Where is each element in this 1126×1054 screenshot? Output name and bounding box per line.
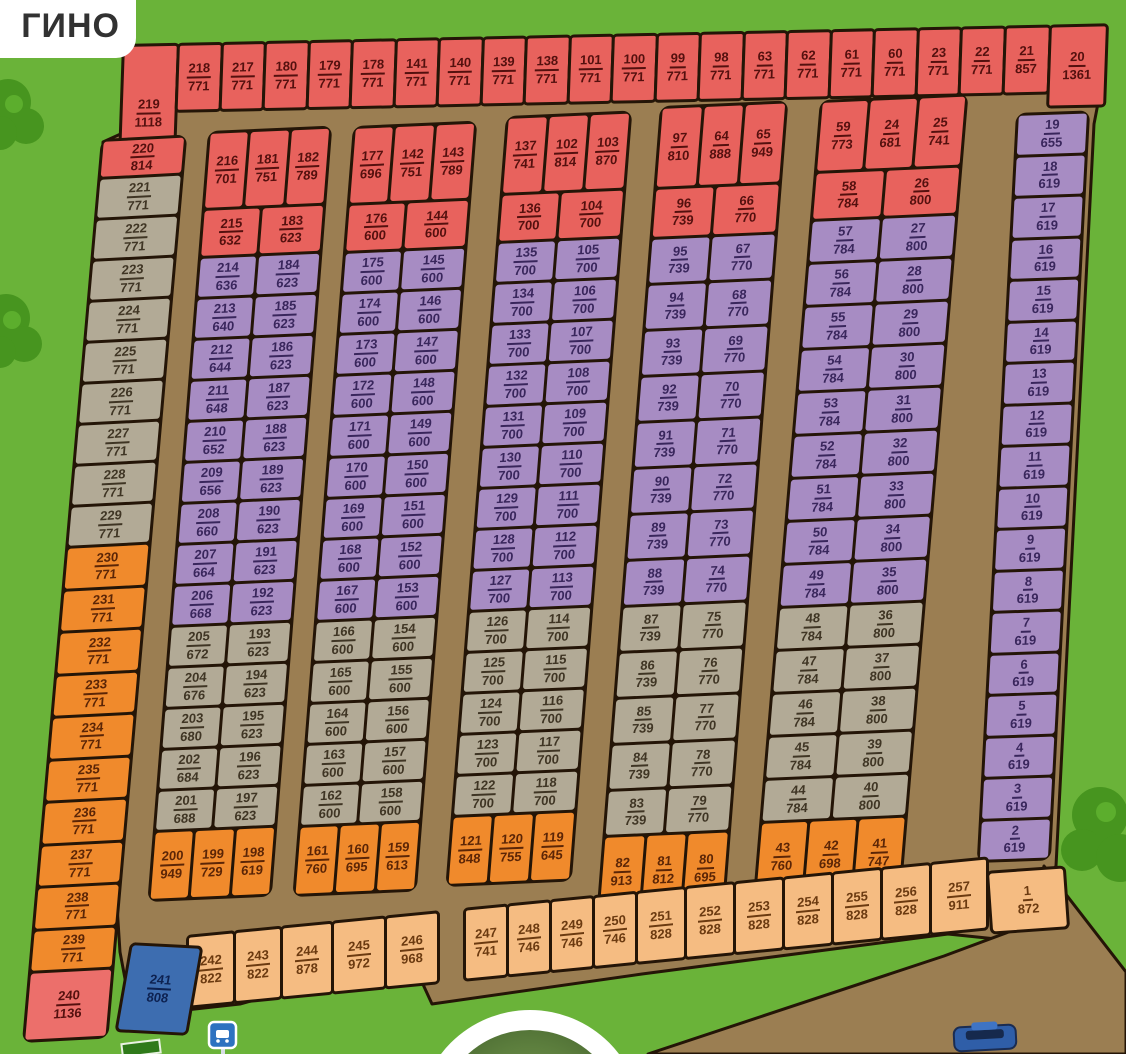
plot-238[interactable]: 238771 xyxy=(35,885,119,929)
plot-224[interactable]: 224771 xyxy=(86,299,170,341)
plot-141[interactable]: 141771 xyxy=(392,37,441,108)
plot-14[interactable]: 14619 xyxy=(1006,321,1076,362)
plot-183[interactable]: 183623 xyxy=(260,206,323,254)
plot-222[interactable]: 222771 xyxy=(94,217,178,259)
plot-139[interactable]: 139771 xyxy=(479,35,528,106)
plot-16[interactable]: 16619 xyxy=(1010,238,1080,279)
plot-25[interactable]: 25741 xyxy=(914,97,965,167)
plot-154[interactable]: 154600 xyxy=(373,618,436,659)
plot-75[interactable]: 75770 xyxy=(681,603,746,649)
plot-26[interactable]: 26800 xyxy=(883,168,959,216)
plot-row: 133700107700 xyxy=(489,321,612,364)
plot-188[interactable]: 188623 xyxy=(244,418,307,459)
plot-246[interactable]: 246968 xyxy=(384,910,440,989)
plot-207[interactable]: 207664 xyxy=(175,543,234,583)
plot-214[interactable]: 214636 xyxy=(198,256,257,296)
plot-area: 784 xyxy=(832,241,855,257)
plot-number: 3 xyxy=(1012,782,1022,799)
plot-row: 4778437800 xyxy=(773,646,919,692)
plot-11[interactable]: 11619 xyxy=(999,446,1069,487)
plot-153[interactable]: 153600 xyxy=(376,577,439,618)
plot-215[interactable]: 215632 xyxy=(201,208,260,255)
plot-239[interactable]: 239771 xyxy=(31,927,115,971)
plot-136[interactable]: 136700 xyxy=(499,193,559,240)
plot-191[interactable]: 191623 xyxy=(234,541,297,582)
plot-120[interactable]: 120755 xyxy=(490,814,533,882)
plot-158[interactable]: 158600 xyxy=(360,782,423,823)
plot-1[interactable]: 1872 xyxy=(986,865,1070,934)
plot-71[interactable]: 71770 xyxy=(695,419,760,465)
plot-114[interactable]: 114700 xyxy=(526,608,590,649)
plot-251[interactable]: 251828 xyxy=(635,886,687,965)
plot-83[interactable]: 83739 xyxy=(606,789,667,835)
plot-176[interactable]: 176600 xyxy=(346,203,405,250)
plot-228[interactable]: 228771 xyxy=(72,463,156,505)
plot-240[interactable]: 2401136 xyxy=(25,970,111,1040)
plot-171[interactable]: 171600 xyxy=(330,415,389,455)
plot-99[interactable]: 99771 xyxy=(653,32,702,103)
plot-36[interactable]: 36800 xyxy=(847,603,923,646)
plot-area: 660 xyxy=(196,523,219,539)
plot-115[interactable]: 115700 xyxy=(523,649,587,690)
plot-110[interactable]: 110700 xyxy=(539,444,603,485)
plot-97[interactable]: 97810 xyxy=(657,107,702,187)
plot-92[interactable]: 92739 xyxy=(638,375,699,421)
plot-2[interactable]: 2619 xyxy=(980,819,1050,860)
plot-17[interactable]: 17619 xyxy=(1012,197,1082,238)
plot-186[interactable]: 186623 xyxy=(250,336,313,377)
plot-area: 676 xyxy=(183,687,206,703)
plot-row: 7619 xyxy=(991,612,1061,653)
plot-27[interactable]: 27800 xyxy=(879,216,955,259)
plot-247[interactable]: 247741 xyxy=(463,903,509,982)
plot-209[interactable]: 209656 xyxy=(182,461,241,501)
plot-65[interactable]: 65949 xyxy=(740,104,785,184)
plot-76[interactable]: 76770 xyxy=(677,649,742,695)
plot-174[interactable]: 174600 xyxy=(340,292,399,332)
plot-6[interactable]: 6619 xyxy=(989,653,1059,694)
plot-187[interactable]: 187623 xyxy=(247,377,310,418)
plot-10[interactable]: 10619 xyxy=(997,487,1067,528)
plot-53[interactable]: 53784 xyxy=(795,391,865,434)
plot-180[interactable]: 180771 xyxy=(262,40,311,111)
plot-202[interactable]: 202684 xyxy=(159,748,218,788)
plot-201[interactable]: 201688 xyxy=(156,789,215,829)
plot-94[interactable]: 94739 xyxy=(645,283,706,329)
plot-148[interactable]: 148600 xyxy=(392,372,455,413)
plot-12[interactable]: 12619 xyxy=(1002,404,1072,445)
plot-54[interactable]: 54784 xyxy=(799,348,869,391)
plot-56[interactable]: 56784 xyxy=(806,262,876,305)
plot-74[interactable]: 74770 xyxy=(684,557,749,603)
plot-229[interactable]: 229771 xyxy=(68,504,152,546)
plot-131[interactable]: 131700 xyxy=(483,405,543,445)
plot-area: 700 xyxy=(579,215,602,231)
plot-126[interactable]: 126700 xyxy=(467,610,527,650)
plot-area: 828 xyxy=(748,915,770,932)
plot-250[interactable]: 250746 xyxy=(592,891,638,970)
plot-146[interactable]: 146600 xyxy=(398,290,461,331)
plot-20[interactable]: 201361 xyxy=(1046,23,1109,108)
plot-93[interactable]: 93739 xyxy=(642,329,703,375)
plot-50[interactable]: 50784 xyxy=(784,520,854,563)
plot-67[interactable]: 67770 xyxy=(710,235,775,281)
plot-169[interactable]: 169600 xyxy=(324,497,383,537)
plot-23[interactable]: 23771 xyxy=(914,26,963,97)
plot-223[interactable]: 223771 xyxy=(90,258,174,300)
plot-89[interactable]: 89739 xyxy=(627,513,688,559)
plot-row: 161760160695159613 xyxy=(296,823,420,894)
plot-178[interactable]: 178771 xyxy=(349,38,398,109)
plot-area: 771 xyxy=(623,69,645,85)
plot-number: 6 xyxy=(1019,657,1029,674)
plot-106[interactable]: 106700 xyxy=(552,280,616,321)
plot-231[interactable]: 231771 xyxy=(61,587,145,631)
plot-7[interactable]: 7619 xyxy=(991,612,1061,653)
plot-area: 600 xyxy=(338,559,361,575)
plot-15[interactable]: 15619 xyxy=(1008,280,1078,321)
plot-206[interactable]: 206668 xyxy=(172,584,231,624)
plot-252[interactable]: 252828 xyxy=(684,881,736,960)
plot-46[interactable]: 46784 xyxy=(770,692,840,735)
plot-78[interactable]: 78770 xyxy=(670,741,735,787)
plot-130[interactable]: 130700 xyxy=(480,446,540,486)
plot-61[interactable]: 61771 xyxy=(827,28,876,99)
plot-254[interactable]: 254828 xyxy=(782,871,834,950)
plot-34[interactable]: 34800 xyxy=(854,517,930,560)
plot-number: 185 xyxy=(273,299,298,317)
plot-152[interactable]: 152600 xyxy=(379,536,442,577)
plot-226[interactable]: 226771 xyxy=(79,381,163,423)
plot-number: 4 xyxy=(1015,740,1025,757)
plot-area: 771 xyxy=(68,864,91,880)
plot-109[interactable]: 109700 xyxy=(543,403,607,444)
plot-181[interactable]: 181751 xyxy=(245,130,288,206)
plot-number: 112 xyxy=(553,530,577,548)
plot-69[interactable]: 69770 xyxy=(702,327,767,373)
plot-179[interactable]: 179771 xyxy=(305,39,354,110)
plot-64[interactable]: 64888 xyxy=(698,105,743,185)
plot-60[interactable]: 60771 xyxy=(871,27,920,98)
plot-59[interactable]: 59773 xyxy=(817,101,868,171)
plot-row: 8619 xyxy=(993,570,1063,611)
plot-area: 814 xyxy=(554,153,577,169)
plot-area: 771 xyxy=(91,609,114,625)
plot-24[interactable]: 24681 xyxy=(866,99,917,169)
plot-number: 172 xyxy=(351,378,376,396)
plot-58[interactable]: 58784 xyxy=(813,171,884,219)
plot-37[interactable]: 37800 xyxy=(843,646,919,689)
plot-172[interactable]: 172600 xyxy=(333,374,392,414)
plot-number: 53 xyxy=(822,396,840,413)
plot-200[interactable]: 200949 xyxy=(151,831,194,899)
plot-134[interactable]: 134700 xyxy=(493,282,553,322)
plot-row: 8773975770 xyxy=(620,603,746,651)
plot-128[interactable]: 128700 xyxy=(473,528,533,568)
plot-87[interactable]: 87739 xyxy=(620,605,681,651)
plot-row: 228771 xyxy=(72,463,156,505)
plot-162[interactable]: 162600 xyxy=(301,784,360,824)
plot-96[interactable]: 96739 xyxy=(653,187,714,237)
plot-196[interactable]: 196623 xyxy=(218,746,281,787)
plot-3[interactable]: 3619 xyxy=(982,778,1052,819)
plot-167[interactable]: 167600 xyxy=(317,579,376,619)
plot-135[interactable]: 135700 xyxy=(496,241,556,281)
plot-216[interactable]: 216701 xyxy=(205,132,248,208)
plot-195[interactable]: 195623 xyxy=(221,705,284,746)
plot-170[interactable]: 170600 xyxy=(327,456,386,496)
plot-151[interactable]: 151600 xyxy=(382,495,445,536)
plot-102[interactable]: 102814 xyxy=(544,115,588,191)
plot-149[interactable]: 149600 xyxy=(389,413,452,454)
plot-133[interactable]: 133700 xyxy=(489,323,549,363)
plot-220[interactable]: 220814 xyxy=(101,138,184,177)
plot-208[interactable]: 208660 xyxy=(179,502,238,542)
plot-28[interactable]: 28800 xyxy=(876,259,952,302)
plot-area: 619 xyxy=(1025,425,1048,441)
plot-29[interactable]: 29800 xyxy=(872,302,948,345)
plot-113[interactable]: 113700 xyxy=(530,567,594,608)
plot-area: 870 xyxy=(595,152,618,168)
plot-144[interactable]: 144600 xyxy=(405,201,468,249)
plot-49[interactable]: 49784 xyxy=(781,563,851,606)
plot-197[interactable]: 197623 xyxy=(215,787,278,828)
plot-221[interactable]: 221771 xyxy=(97,176,181,218)
plot-124[interactable]: 124700 xyxy=(460,692,520,732)
plot-13[interactable]: 13619 xyxy=(1004,363,1074,404)
plot-173[interactable]: 173600 xyxy=(336,333,395,373)
plot-205[interactable]: 205672 xyxy=(169,625,228,665)
plot-number: 177 xyxy=(360,149,385,167)
plot-area: 700 xyxy=(559,464,582,480)
plot-118[interactable]: 118700 xyxy=(514,772,578,813)
plot-108[interactable]: 108700 xyxy=(546,362,610,403)
plot-163[interactable]: 163600 xyxy=(304,743,363,783)
plot-184[interactable]: 184623 xyxy=(257,254,320,295)
plot-155[interactable]: 155600 xyxy=(369,659,432,700)
plot-204[interactable]: 204676 xyxy=(166,666,225,706)
plot-91[interactable]: 91739 xyxy=(635,421,696,467)
plot-number: 111 xyxy=(557,489,581,507)
plot-166[interactable]: 166600 xyxy=(314,620,373,660)
plot-52[interactable]: 52784 xyxy=(791,434,861,477)
plot-185[interactable]: 185623 xyxy=(253,295,316,336)
plot-66[interactable]: 66770 xyxy=(713,185,779,235)
plot-number: 137 xyxy=(513,139,538,157)
plot-255[interactable]: 255828 xyxy=(831,867,883,946)
plot-112[interactable]: 112700 xyxy=(533,526,597,567)
plot-213[interactable]: 213640 xyxy=(195,297,254,337)
plot-104[interactable]: 104700 xyxy=(559,191,623,239)
plot-232[interactable]: 232771 xyxy=(57,630,141,674)
plot-55[interactable]: 55784 xyxy=(802,305,872,348)
plot-31[interactable]: 31800 xyxy=(865,388,941,431)
plot-101[interactable]: 101771 xyxy=(566,34,615,105)
plot-number: 239 xyxy=(61,932,86,950)
plot-number: 35 xyxy=(880,565,898,582)
plot-row: 9073972770 xyxy=(631,465,757,513)
plot-70[interactable]: 70770 xyxy=(699,373,764,419)
plot-203[interactable]: 203680 xyxy=(162,707,221,747)
plot-73[interactable]: 73770 xyxy=(688,511,753,557)
plot-233[interactable]: 233771 xyxy=(54,672,138,716)
plot-142[interactable]: 142751 xyxy=(390,125,433,201)
plot-88[interactable]: 88739 xyxy=(624,559,685,605)
plot-132[interactable]: 132700 xyxy=(486,364,546,404)
plot-125[interactable]: 125700 xyxy=(464,651,524,691)
plot-77[interactable]: 77770 xyxy=(673,695,738,741)
plot-147[interactable]: 147600 xyxy=(395,331,458,372)
plot-192[interactable]: 192623 xyxy=(231,582,294,623)
plot-18[interactable]: 18619 xyxy=(1015,155,1085,196)
plot-150[interactable]: 150600 xyxy=(385,454,448,495)
plot-245[interactable]: 245972 xyxy=(331,915,387,994)
plot-107[interactable]: 107700 xyxy=(549,321,613,362)
plot-90[interactable]: 90739 xyxy=(631,467,692,513)
plot-249[interactable]: 249746 xyxy=(549,895,595,974)
plot-5[interactable]: 5619 xyxy=(986,695,1056,736)
plot-182[interactable]: 182789 xyxy=(286,129,329,205)
plot-area: 636 xyxy=(215,277,238,293)
plot-253[interactable]: 253828 xyxy=(733,876,785,955)
plot-8[interactable]: 8619 xyxy=(993,570,1063,611)
plot-number: 42 xyxy=(822,838,840,855)
plot-39[interactable]: 39800 xyxy=(836,732,912,775)
plot-48[interactable]: 48784 xyxy=(777,606,847,649)
plot-159[interactable]: 159613 xyxy=(377,823,420,891)
plot-257[interactable]: 257911 xyxy=(929,856,989,936)
plot-21[interactable]: 21857 xyxy=(1001,25,1051,96)
plot-area: 700 xyxy=(491,549,514,565)
plot-63[interactable]: 63771 xyxy=(740,30,789,101)
plot-row: 203680195623 xyxy=(162,705,283,748)
plot-4[interactable]: 4619 xyxy=(984,736,1054,777)
plot-area: 700 xyxy=(501,426,524,442)
plot-95[interactable]: 95739 xyxy=(649,237,710,283)
plot-22[interactable]: 22771 xyxy=(958,25,1007,96)
plot-number: 113 xyxy=(550,571,574,589)
plot-160[interactable]: 160695 xyxy=(336,824,379,892)
plot-57[interactable]: 57784 xyxy=(809,219,879,262)
plot-165[interactable]: 165600 xyxy=(311,661,370,701)
plot-row: 170600150600 xyxy=(327,454,448,497)
plot-85[interactable]: 85739 xyxy=(613,697,674,743)
plot-234[interactable]: 234771 xyxy=(50,715,134,759)
plot-86[interactable]: 86739 xyxy=(616,651,677,697)
plot-30[interactable]: 30800 xyxy=(869,345,945,388)
plot-84[interactable]: 84739 xyxy=(609,743,670,789)
plot-227[interactable]: 227771 xyxy=(76,422,160,464)
plot-area: 619 xyxy=(1003,840,1026,856)
plot-38[interactable]: 38800 xyxy=(840,689,916,732)
plot-119[interactable]: 119645 xyxy=(531,813,574,881)
plot-143[interactable]: 143789 xyxy=(431,124,474,200)
plot-19[interactable]: 19655 xyxy=(1017,114,1087,155)
plot-117[interactable]: 117700 xyxy=(517,731,581,772)
plot-row: 8973973770 xyxy=(627,511,753,559)
plot-105[interactable]: 105700 xyxy=(556,239,620,280)
plot-123[interactable]: 123700 xyxy=(457,733,517,773)
plot-area: 668 xyxy=(189,605,212,621)
plot-235[interactable]: 235771 xyxy=(46,757,130,801)
plot-241[interactable]: 241808 xyxy=(114,942,203,1036)
plot-212[interactable]: 212644 xyxy=(191,338,250,378)
plot-168[interactable]: 168600 xyxy=(320,538,379,578)
plot-45[interactable]: 45784 xyxy=(766,735,836,778)
plot-122[interactable]: 122700 xyxy=(454,774,514,814)
plot-225[interactable]: 225771 xyxy=(83,340,167,382)
plot-256[interactable]: 256828 xyxy=(880,862,932,941)
plot-194[interactable]: 194623 xyxy=(224,664,287,705)
plot-177[interactable]: 177696 xyxy=(350,127,393,203)
plot-157[interactable]: 157600 xyxy=(363,741,426,782)
plot-189[interactable]: 189623 xyxy=(240,459,303,500)
plot-175[interactable]: 175600 xyxy=(343,251,402,291)
plot-51[interactable]: 51784 xyxy=(788,477,858,520)
plot-62[interactable]: 62771 xyxy=(784,29,833,100)
plot-row: 5578429800 xyxy=(802,302,948,348)
plot-103[interactable]: 103870 xyxy=(585,114,629,190)
plot-33[interactable]: 33800 xyxy=(858,474,934,517)
plot-138[interactable]: 138771 xyxy=(523,35,572,106)
plot-number: 38 xyxy=(869,694,887,711)
plot-210[interactable]: 210652 xyxy=(185,420,244,460)
plot-32[interactable]: 32800 xyxy=(861,431,937,474)
plot-193[interactable]: 193623 xyxy=(228,623,291,664)
plot-164[interactable]: 164600 xyxy=(307,702,366,742)
plot-218[interactable]: 218771 xyxy=(175,42,224,113)
plot-116[interactable]: 116700 xyxy=(520,690,584,731)
plot-236[interactable]: 236771 xyxy=(42,800,126,844)
plot-230[interactable]: 230771 xyxy=(65,545,149,589)
plot-190[interactable]: 190623 xyxy=(237,500,300,541)
plot-198[interactable]: 198619 xyxy=(232,828,275,896)
plot-68[interactable]: 68770 xyxy=(706,281,771,327)
plot-244[interactable]: 244878 xyxy=(280,920,334,999)
plot-row: 201688197623 xyxy=(156,787,277,830)
plot-111[interactable]: 111700 xyxy=(536,485,600,526)
plot-243[interactable]: 243822 xyxy=(233,925,283,1004)
plot-121[interactable]: 121848 xyxy=(449,816,492,884)
plot-number: 108 xyxy=(566,365,591,383)
plot-35[interactable]: 35800 xyxy=(851,560,927,603)
plot-217[interactable]: 217771 xyxy=(218,41,267,112)
plot-129[interactable]: 129700 xyxy=(477,487,537,527)
plot-140[interactable]: 140771 xyxy=(436,36,485,107)
plot-47[interactable]: 47784 xyxy=(773,649,843,692)
plot-145[interactable]: 145600 xyxy=(402,249,465,290)
plot-area: 771 xyxy=(76,779,99,795)
plot-9[interactable]: 9619 xyxy=(995,529,1065,570)
plot-79[interactable]: 79770 xyxy=(666,787,731,833)
plot-number: 116 xyxy=(540,694,564,712)
plot-161[interactable]: 161760 xyxy=(296,826,339,894)
plot-72[interactable]: 72770 xyxy=(692,465,757,511)
plot-row: 127700113700 xyxy=(470,567,593,610)
plot-127[interactable]: 127700 xyxy=(470,569,530,609)
plot-199[interactable]: 199729 xyxy=(191,829,234,897)
plot-number: 139 xyxy=(492,55,516,72)
plot-100[interactable]: 100771 xyxy=(610,33,659,104)
plot-156[interactable]: 156600 xyxy=(366,700,429,741)
plot-211[interactable]: 211648 xyxy=(188,379,247,419)
plot-248[interactable]: 248746 xyxy=(506,899,552,978)
plot-44[interactable]: 44784 xyxy=(762,778,832,821)
plot-237[interactable]: 237771 xyxy=(39,842,123,886)
plot-137[interactable]: 137741 xyxy=(503,117,547,193)
plot-98[interactable]: 98771 xyxy=(697,31,746,102)
plot-40[interactable]: 40800 xyxy=(832,775,908,818)
